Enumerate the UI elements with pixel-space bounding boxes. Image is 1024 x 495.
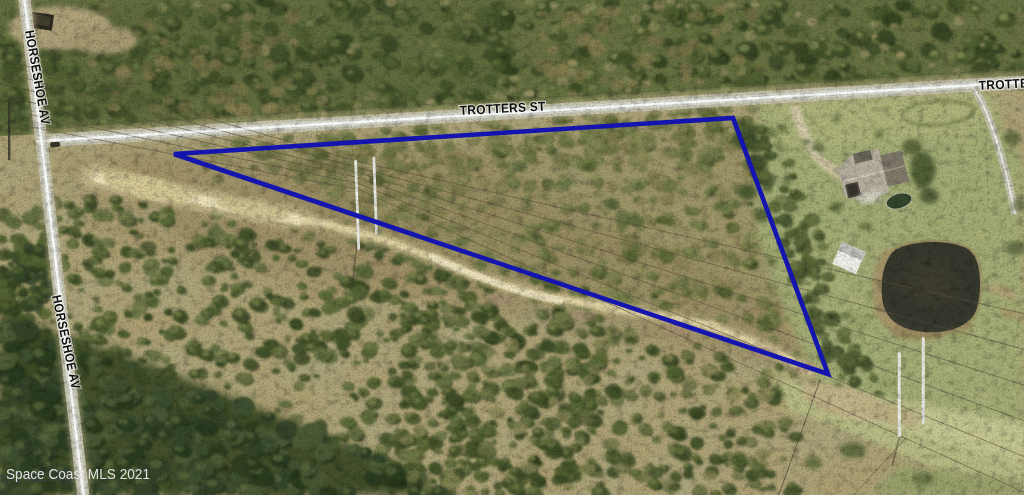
svg-text:Space Coast MLS 2021: Space Coast MLS 2021 — [6, 466, 150, 482]
